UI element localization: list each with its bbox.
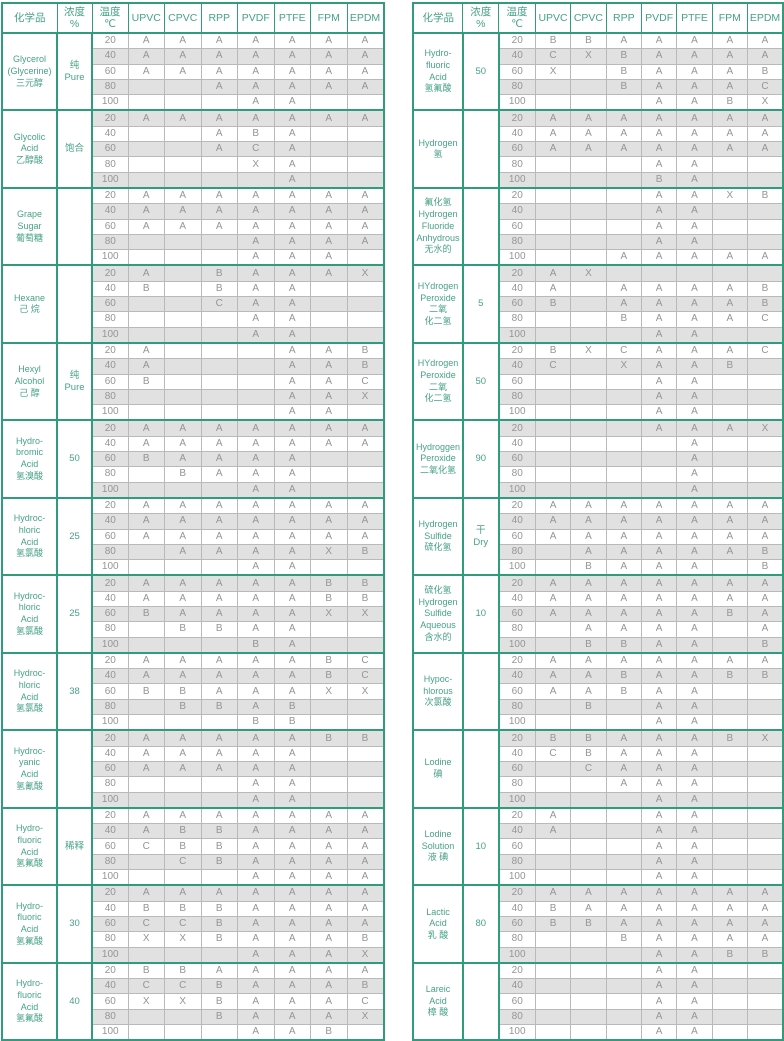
- rating-cell-upvc: [535, 622, 570, 637]
- rating-cell-cpvc: [571, 95, 606, 111]
- rating-cell-rpp: [606, 808, 641, 824]
- temperature-cell: 20: [499, 33, 536, 49]
- rating-cell-cpvc: [571, 482, 606, 498]
- rating-cell-pvdf: A: [238, 653, 275, 669]
- rating-cell-cpvc: A: [165, 498, 202, 514]
- rating-cell-pvdf: A: [238, 560, 275, 576]
- temperature-cell: 60: [92, 219, 128, 234]
- rating-cell-fpm: A: [311, 979, 348, 994]
- rating-cell-fpm: A: [311, 79, 348, 94]
- rating-cell-cpvc: [571, 452, 606, 467]
- rating-cell-rpp: [201, 343, 238, 359]
- rating-cell-cpvc: [571, 839, 606, 854]
- rating-cell-fpm: A: [712, 126, 747, 141]
- rating-cell-epdm: [347, 777, 384, 792]
- rating-cell-ptfe: A: [677, 234, 712, 249]
- rating-cell-pvdf: [238, 389, 275, 404]
- temperature-cell: 40: [499, 746, 536, 761]
- rating-cell-epdm: A: [748, 622, 784, 637]
- rating-cell-upvc: [535, 95, 570, 111]
- table-row: Hydro- fluoric Acid 氢氟酸稀释20AAAAAAA: [2, 808, 384, 824]
- rating-cell-cpvc: C: [165, 979, 202, 994]
- rating-cell-upvc: [535, 870, 570, 886]
- rating-cell-upvc: [535, 715, 570, 731]
- rating-cell-rpp: A: [201, 142, 238, 157]
- rating-cell-pvdf: [238, 405, 275, 421]
- rating-cell-ptfe: A: [677, 172, 712, 188]
- rating-cell-epdm: A: [748, 885, 784, 901]
- rating-cell-cpvc: B: [571, 916, 606, 931]
- rating-cell-ptfe: A: [274, 281, 311, 296]
- concentration-cell: 5: [463, 265, 499, 342]
- rating-cell-upvc: A: [128, 33, 165, 49]
- rating-cell-upvc: [128, 405, 165, 421]
- rating-cell-upvc: [128, 870, 165, 886]
- temperature-cell: 80: [499, 544, 536, 559]
- rating-cell-pvdf: A: [238, 544, 275, 559]
- rating-cell-cpvc: B: [165, 684, 202, 699]
- rating-cell-epdm: A: [347, 64, 384, 79]
- chemical-name-cell: HYdrogen Peroxide 二氧 化二氢: [413, 265, 463, 342]
- rating-cell-upvc: [535, 761, 570, 776]
- rating-cell-cpvc: [571, 281, 606, 296]
- rating-cell-fpm: A: [712, 916, 747, 931]
- rating-cell-fpm: A: [311, 916, 348, 931]
- rating-cell-upvc: B: [535, 916, 570, 931]
- rating-cell-rpp: [201, 359, 238, 374]
- rating-cell-pvdf: A: [238, 932, 275, 947]
- rating-cell-rpp: B: [201, 839, 238, 854]
- rating-cell-cpvc: A: [165, 33, 202, 49]
- rating-cell-pvdf: A: [641, 870, 676, 886]
- rating-cell-cpvc: [571, 947, 606, 963]
- rating-cell-rpp: A: [201, 420, 238, 436]
- temperature-cell: 80: [92, 157, 128, 172]
- rating-cell-cpvc: A: [165, 591, 202, 606]
- rating-cell-pvdf: A: [238, 327, 275, 343]
- rating-cell-pvdf: A: [238, 730, 275, 746]
- temperature-cell: 80: [92, 234, 128, 249]
- rating-cell-fpm: [712, 792, 747, 808]
- rating-cell-pvdf: A: [238, 684, 275, 699]
- rating-cell-ptfe: A: [274, 359, 311, 374]
- rating-cell-cpvc: [165, 297, 202, 312]
- temperature-cell: 60: [499, 684, 536, 699]
- rating-cell-fpm: A: [712, 932, 747, 947]
- rating-cell-pvdf: [641, 452, 676, 467]
- rating-cell-pvdf: A: [641, 669, 676, 684]
- rating-cell-pvdf: A: [641, 327, 676, 343]
- rating-cell-upvc: A: [128, 64, 165, 79]
- rating-cell-ptfe: A: [677, 916, 712, 931]
- rating-cell-epdm: [347, 637, 384, 653]
- rating-cell-upvc: A: [535, 606, 570, 621]
- rating-cell-upvc: A: [128, 436, 165, 451]
- rating-cell-cpvc: C: [165, 916, 202, 931]
- rating-cell-rpp: A: [606, 281, 641, 296]
- rating-cell-rpp: [606, 994, 641, 1009]
- temperature-cell: 80: [92, 854, 128, 869]
- rating-cell-epdm: A: [748, 653, 784, 669]
- rating-cell-cpvc: [571, 824, 606, 839]
- rating-cell-cpvc: A: [165, 204, 202, 219]
- chemical-name-cell: HYdrogen Peroxide 二氧 化二氢: [413, 343, 463, 420]
- rating-cell-fpm: X: [311, 606, 348, 621]
- rating-cell-pvdf: [641, 436, 676, 451]
- rating-cell-upvc: [535, 544, 570, 559]
- concentration-cell: 50: [57, 420, 92, 497]
- rating-cell-pvdf: A: [641, 1025, 676, 1041]
- rating-cell-rpp: A: [606, 777, 641, 792]
- rating-cell-fpm: A: [311, 374, 348, 389]
- rating-cell-upvc: [128, 327, 165, 343]
- rating-cell-epdm: A: [347, 854, 384, 869]
- rating-cell-pvdf: B: [238, 715, 275, 731]
- rating-cell-ptfe: A: [677, 436, 712, 451]
- temperature-cell: 20: [499, 265, 536, 281]
- temperature-cell: 100: [92, 637, 128, 653]
- rating-cell-cpvc: [571, 994, 606, 1009]
- rating-cell-pvdf: A: [238, 529, 275, 544]
- rating-cell-ptfe: A: [274, 560, 311, 576]
- rating-cell-epdm: B: [748, 544, 784, 559]
- rating-cell-cpvc: [571, 250, 606, 266]
- rating-cell-cpvc: [165, 1025, 202, 1041]
- rating-cell-upvc: B: [128, 452, 165, 467]
- rating-cell-upvc: A: [535, 529, 570, 544]
- rating-cell-cpvc: [165, 312, 202, 327]
- rating-cell-cpvc: [165, 482, 202, 498]
- temperature-cell: 80: [499, 932, 536, 947]
- rating-cell-upvc: [128, 250, 165, 266]
- rating-cell-rpp: B: [201, 932, 238, 947]
- table-row: 氟化氢 Hydrogen Fluoride Anhydrous 无水的20AAX…: [413, 188, 783, 204]
- rating-cell-upvc: B: [535, 901, 570, 916]
- table-row: HYdrogen Peroxide 二氧 化二氢5020BXCAAAC: [413, 343, 783, 359]
- rating-cell-upvc: A: [535, 885, 570, 901]
- rating-cell-fpm: A: [311, 854, 348, 869]
- temperature-cell: 20: [92, 265, 128, 281]
- rating-cell-cpvc: [571, 467, 606, 482]
- rating-cell-epdm: [748, 684, 784, 699]
- rating-cell-rpp: A: [606, 544, 641, 559]
- rating-cell-upvc: [535, 947, 570, 963]
- rating-cell-epdm: [748, 436, 784, 451]
- chemical-name-cell: Hydrogen Sulfide 硫化氢: [413, 498, 463, 575]
- rating-cell-cpvc: A: [165, 219, 202, 234]
- rating-cell-rpp: B: [606, 64, 641, 79]
- temperature-cell: 20: [92, 575, 128, 591]
- rating-cell-fpm: A: [311, 265, 348, 281]
- rating-cell-rpp: C: [201, 297, 238, 312]
- rating-cell-fpm: [311, 297, 348, 312]
- rating-cell-upvc: A: [535, 126, 570, 141]
- rating-cell-upvc: A: [535, 669, 570, 684]
- table-row: Glycerol (Glycerine) 三元醇纯 Pure20AAAAAAA: [2, 33, 384, 49]
- rating-cell-pvdf: A: [641, 979, 676, 994]
- concentration-cell: 饱合: [57, 110, 92, 187]
- rating-cell-rpp: A: [606, 746, 641, 761]
- rating-cell-pvdf: A: [641, 653, 676, 669]
- column-header-chemical: 化学品: [2, 3, 57, 33]
- rating-cell-ptfe: A: [677, 467, 712, 482]
- rating-cell-epdm: X: [748, 95, 784, 111]
- rating-cell-pvdf: A: [238, 777, 275, 792]
- rating-cell-rpp: [201, 234, 238, 249]
- concentration-cell: [463, 730, 499, 807]
- rating-cell-cpvc: A: [165, 529, 202, 544]
- rating-cell-ptfe: A: [274, 142, 311, 157]
- chemical-name-cell: Hypoc- hlorous 次氯酸: [413, 653, 463, 730]
- column-header-cpvc: CPVC: [165, 3, 202, 33]
- temperature-cell: 100: [499, 172, 536, 188]
- temperature-cell: 20: [499, 110, 536, 126]
- rating-cell-cpvc: A: [571, 901, 606, 916]
- rating-cell-ptfe: A: [677, 1009, 712, 1024]
- temperature-cell: 60: [499, 529, 536, 544]
- rating-cell-upvc: [128, 142, 165, 157]
- rating-cell-fpm: A: [712, 312, 747, 327]
- rating-cell-pvdf: [641, 265, 676, 281]
- rating-cell-rpp: B: [201, 824, 238, 839]
- column-header-concentration: 浓度 %: [463, 3, 499, 33]
- rating-cell-ptfe: A: [677, 79, 712, 94]
- rating-cell-fpm: A: [311, 824, 348, 839]
- rating-cell-ptfe: A: [274, 901, 311, 916]
- rating-cell-fpm: [712, 622, 747, 637]
- rating-cell-cpvc: [571, 854, 606, 869]
- rating-cell-fpm: A: [311, 250, 348, 266]
- temperature-cell: 60: [92, 839, 128, 854]
- rating-cell-fpm: X: [311, 684, 348, 699]
- rating-cell-fpm: [712, 452, 747, 467]
- table-row: Hydrogen 氢20AAAAAAA: [413, 110, 783, 126]
- rating-cell-pvdf: A: [641, 281, 676, 296]
- rating-cell-epdm: B: [347, 730, 384, 746]
- chemical-name-cell: Hexyl Alcohol 己 醇: [2, 343, 57, 420]
- rating-cell-epdm: [347, 467, 384, 482]
- rating-cell-epdm: A: [748, 49, 784, 64]
- rating-cell-rpp: [606, 265, 641, 281]
- rating-cell-cpvc: A: [165, 188, 202, 204]
- rating-cell-upvc: A: [535, 824, 570, 839]
- rating-cell-ptfe: A: [274, 653, 311, 669]
- rating-cell-ptfe: A: [274, 994, 311, 1009]
- rating-cell-ptfe: A: [677, 669, 712, 684]
- rating-cell-fpm: [712, 405, 747, 421]
- rating-cell-epdm: B: [347, 544, 384, 559]
- rating-cell-epdm: X: [347, 606, 384, 621]
- rating-cell-fpm: B: [712, 95, 747, 111]
- rating-cell-ptfe: A: [677, 188, 712, 204]
- rating-cell-pvdf: A: [238, 606, 275, 621]
- rating-cell-pvdf: A: [238, 188, 275, 204]
- rating-cell-epdm: B: [748, 947, 784, 963]
- rating-cell-fpm: [712, 746, 747, 761]
- rating-cell-ptfe: A: [274, 110, 311, 126]
- rating-cell-pvdf: A: [238, 979, 275, 994]
- rating-cell-ptfe: A: [677, 482, 712, 498]
- rating-cell-epdm: B: [748, 669, 784, 684]
- column-header-pvdf: PVDF: [238, 3, 275, 33]
- temperature-cell: 20: [92, 343, 128, 359]
- concentration-cell: [57, 265, 92, 342]
- chemical-name-cell: Lareic Acid 樟 酸: [413, 963, 463, 1040]
- rating-cell-ptfe: A: [274, 297, 311, 312]
- temperature-cell: 40: [499, 126, 536, 141]
- rating-cell-upvc: [128, 389, 165, 404]
- temperature-cell: 100: [499, 327, 536, 343]
- rating-cell-rpp: [201, 312, 238, 327]
- rating-cell-fpm: [311, 172, 348, 188]
- rating-cell-upvc: [535, 79, 570, 94]
- rating-cell-upvc: [535, 420, 570, 436]
- rating-cell-ptfe: B: [274, 699, 311, 714]
- rating-cell-upvc: [128, 947, 165, 963]
- rating-cell-fpm: A: [311, 994, 348, 1009]
- rating-cell-cpvc: A: [165, 452, 202, 467]
- rating-cell-pvdf: A: [641, 885, 676, 901]
- rating-cell-cpvc: [571, 715, 606, 731]
- rating-cell-cpvc: A: [165, 746, 202, 761]
- rating-cell-ptfe: A: [677, 637, 712, 653]
- rating-cell-upvc: B: [535, 730, 570, 746]
- rating-cell-upvc: [535, 1009, 570, 1024]
- rating-cell-pvdf: A: [238, 420, 275, 436]
- rating-cell-pvdf: A: [238, 1009, 275, 1024]
- rating-cell-epdm: [347, 312, 384, 327]
- temperature-cell: 40: [499, 514, 536, 529]
- rating-cell-ptfe: A: [677, 963, 712, 979]
- rating-cell-epdm: [748, 389, 784, 404]
- temperature-cell: 40: [92, 514, 128, 529]
- rating-cell-upvc: [535, 963, 570, 979]
- rating-cell-upvc: [535, 250, 570, 266]
- rating-cell-pvdf: A: [238, 870, 275, 886]
- rating-cell-pvdf: A: [641, 142, 676, 157]
- rating-cell-epdm: [748, 1025, 784, 1041]
- concentration-cell: 50: [463, 33, 499, 110]
- temperature-cell: 80: [92, 622, 128, 637]
- temperature-cell: 80: [499, 854, 536, 869]
- rating-cell-epdm: [748, 870, 784, 886]
- rating-cell-ptfe: A: [677, 297, 712, 312]
- rating-cell-cpvc: B: [165, 467, 202, 482]
- rating-cell-epdm: [347, 1025, 384, 1041]
- table-row: Hexane 己 烷20ABAAAX: [2, 265, 384, 281]
- rating-cell-pvdf: A: [238, 916, 275, 931]
- rating-cell-epdm: A: [748, 529, 784, 544]
- rating-cell-fpm: A: [311, 436, 348, 451]
- rating-cell-rpp: B: [201, 699, 238, 714]
- rating-cell-rpp: [606, 1025, 641, 1041]
- temperature-cell: 60: [92, 994, 128, 1009]
- rating-cell-ptfe: A: [677, 901, 712, 916]
- temperature-cell: 40: [499, 979, 536, 994]
- rating-cell-ptfe: A: [677, 420, 712, 436]
- temperature-cell: 80: [499, 312, 536, 327]
- rating-cell-rpp: A: [201, 33, 238, 49]
- rating-cell-ptfe: A: [677, 839, 712, 854]
- rating-cell-pvdf: A: [641, 64, 676, 79]
- rating-cell-cpvc: [165, 327, 202, 343]
- rating-cell-upvc: A: [535, 684, 570, 699]
- rating-cell-cpvc: A: [571, 684, 606, 699]
- rating-cell-rpp: [606, 172, 641, 188]
- rating-cell-rpp: [606, 839, 641, 854]
- rating-cell-pvdf: A: [238, 467, 275, 482]
- rating-cell-fpm: [712, 157, 747, 172]
- rating-cell-pvdf: A: [238, 808, 275, 824]
- rating-cell-ptfe: A: [274, 250, 311, 266]
- rating-cell-fpm: [712, 265, 747, 281]
- rating-cell-upvc: [128, 544, 165, 559]
- temperature-cell: 100: [499, 95, 536, 111]
- rating-cell-cpvc: B: [571, 637, 606, 653]
- rating-cell-pvdf: A: [641, 622, 676, 637]
- rating-cell-fpm: [712, 436, 747, 451]
- rating-cell-epdm: B: [748, 188, 784, 204]
- rating-cell-rpp: A: [201, 746, 238, 761]
- rating-cell-upvc: [535, 1025, 570, 1041]
- rating-cell-pvdf: B: [238, 637, 275, 653]
- rating-cell-pvdf: [238, 359, 275, 374]
- column-header-upvc: UPVC: [128, 3, 165, 33]
- rating-cell-cpvc: A: [165, 653, 202, 669]
- rating-cell-upvc: [535, 854, 570, 869]
- rating-cell-cpvc: A: [571, 498, 606, 514]
- rating-cell-rpp: A: [201, 808, 238, 824]
- rating-cell-cpvc: B: [165, 963, 202, 979]
- rating-cell-rpp: A: [201, 436, 238, 451]
- rating-cell-upvc: A: [128, 761, 165, 776]
- rating-cell-epdm: [748, 746, 784, 761]
- rating-cell-fpm: [712, 637, 747, 653]
- rating-cell-rpp: A: [201, 79, 238, 94]
- temperature-cell: 60: [92, 606, 128, 621]
- rating-cell-epdm: C: [347, 669, 384, 684]
- rating-cell-fpm: A: [311, 901, 348, 916]
- temperature-cell: 40: [92, 591, 128, 606]
- rating-cell-pvdf: A: [641, 560, 676, 576]
- rating-cell-epdm: A: [748, 498, 784, 514]
- rating-cell-ptfe: A: [677, 498, 712, 514]
- rating-cell-cpvc: [165, 281, 202, 296]
- rating-cell-fpm: [712, 963, 747, 979]
- rating-cell-rpp: B: [606, 312, 641, 327]
- rating-cell-pvdf: A: [238, 234, 275, 249]
- rating-cell-pvdf: A: [641, 374, 676, 389]
- rating-cell-epdm: [347, 699, 384, 714]
- temperature-cell: 40: [499, 669, 536, 684]
- rating-cell-ptfe: A: [677, 33, 712, 49]
- rating-cell-ptfe: A: [677, 606, 712, 621]
- rating-cell-rpp: [606, 452, 641, 467]
- rating-cell-cpvc: X: [165, 994, 202, 1009]
- rating-cell-upvc: [535, 979, 570, 994]
- rating-cell-rpp: A: [606, 730, 641, 746]
- temperature-cell: 100: [92, 95, 128, 111]
- rating-cell-cpvc: B: [571, 560, 606, 576]
- rating-cell-upvc: A: [128, 188, 165, 204]
- rating-cell-fpm: A: [712, 591, 747, 606]
- rating-cell-epdm: [748, 359, 784, 374]
- rating-cell-rpp: [201, 172, 238, 188]
- rating-cell-rpp: [606, 854, 641, 869]
- rating-cell-cpvc: [571, 327, 606, 343]
- column-header-ptfe: PTFE: [677, 3, 712, 33]
- table-row: Hydroggen Peroxide 二氧化氢9020AAAX: [413, 420, 783, 436]
